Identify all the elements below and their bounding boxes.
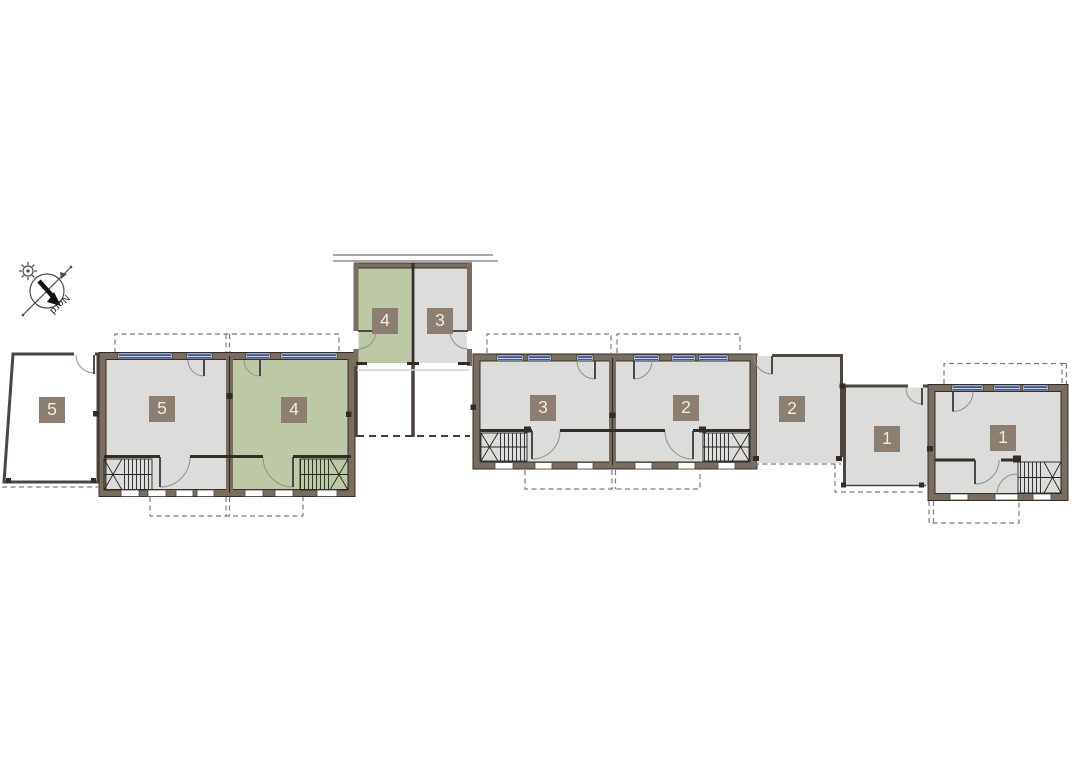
building-left [2, 334, 355, 516]
right-building-windows [952, 385, 1048, 391]
unit-label-4[interactable]: 4 [281, 397, 307, 423]
unit-label-1-annex[interactable]: 1 [874, 426, 900, 452]
unit-4-area[interactable] [229, 355, 353, 494]
roof-outline-left-top [115, 334, 339, 353]
site-plan-canvas: Nord [0, 0, 1076, 780]
compass: Nord [19, 262, 72, 316]
roof-outline-middle-top [487, 334, 740, 353]
roof-outline-middle-bottom [525, 470, 700, 489]
sun-icon [19, 262, 37, 280]
unit-label-1[interactable]: 1 [990, 425, 1016, 451]
unit-label-5-annex[interactable]: 5 [39, 397, 65, 423]
garden-walls [356, 366, 470, 437]
unit-label-4-garden[interactable]: 4 [372, 308, 398, 334]
unit-label-2-annex[interactable]: 2 [779, 396, 805, 422]
roof-outline-right-top [944, 364, 1067, 385]
building-right [835, 364, 1068, 524]
annex5-door-opening [74, 352, 95, 358]
annex5-door [76, 355, 94, 374]
unit-label-3[interactable]: 3 [530, 395, 556, 421]
unit-label-2[interactable]: 2 [673, 395, 699, 421]
unit-label-3-garden[interactable]: 3 [427, 308, 453, 334]
floor-plan-svg: Nord [0, 0, 1076, 780]
unit-5-area[interactable] [102, 355, 229, 494]
right-building-openings [950, 494, 1051, 500]
rotation-arrowhead [60, 272, 67, 279]
unit-label-5[interactable]: 5 [149, 396, 175, 422]
